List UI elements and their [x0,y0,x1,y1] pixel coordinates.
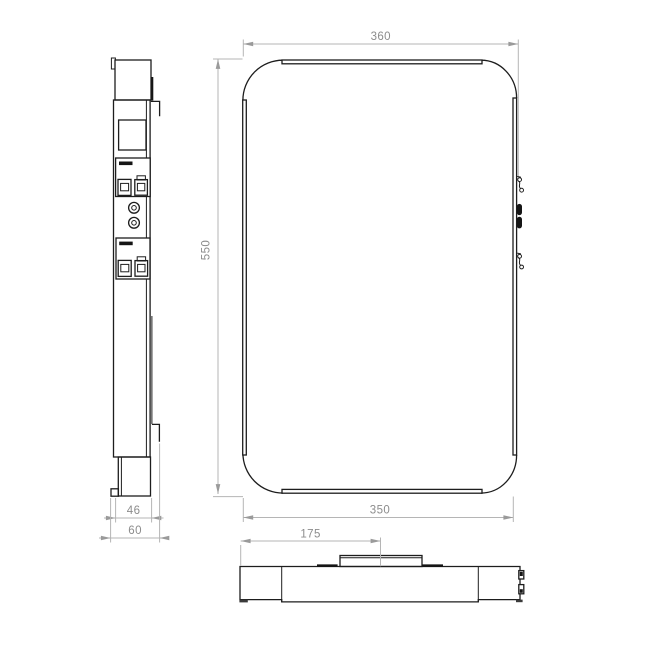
dim-label-175: 175 [300,528,320,540]
round-button-lower-center [132,221,137,226]
corner-arc-bottom-right [481,455,517,493]
bottom-foot [111,489,118,496]
arrowhead [160,536,170,541]
lower-hook-ring-bottom [520,265,524,269]
arrowhead [508,42,518,47]
side-knob-lower [517,217,522,229]
top-cap [115,60,151,100]
round-button-upper-center [132,206,137,211]
arrowhead [371,539,381,544]
top-edge-slot [282,60,482,64]
top-hook-arm [151,101,160,116]
dim-label-360: 360 [371,31,391,43]
dim-label-60: 60 [128,525,142,537]
dim-label-550: 550 [201,240,213,260]
lower-hook-nub [517,253,521,254]
right-connector-upper-pin [520,572,523,576]
bottom-cap [118,457,150,496]
left-foot [239,600,247,603]
round-button-lower [129,217,140,228]
lower-hook-wire [518,258,520,266]
dim-depth-overall: 60 [99,444,169,543]
arrowhead [216,59,221,69]
arrowhead [243,42,253,47]
right-connector-lower-pin [520,589,523,593]
right-edge-hardware [517,176,524,269]
dim-front-width-bottom: 350 [243,497,513,523]
terminal-block-lower [116,238,150,279]
corner-arc-bottom-left [243,453,283,493]
control-buttons [129,202,140,228]
left-edge-slot [243,100,247,455]
arrowhead [243,515,253,520]
arrowhead [101,536,111,541]
terminal-label-bar [119,162,133,166]
corner-arc-top-left [243,60,283,100]
bottom-hook-arm [152,424,160,441]
upper-hook-ring-bottom [520,188,524,192]
dim-label-46: 46 [127,505,141,517]
panel-dimension-drawing: 360 550 350 175 [0,0,650,650]
dim-depth-inner: 46 [104,498,164,523]
right-edge-slot [513,98,517,455]
right-foot [516,600,523,603]
side-view [111,58,160,496]
bottom-edge-slot [282,489,482,493]
drawing-canvas: 360 550 350 175 [0,0,650,650]
upper-hook-nub [517,176,521,177]
arrowhead [216,484,221,494]
bottom-view [239,556,523,603]
dim-front-height: 550 [201,59,244,497]
dimensions: 360 550 350 175 [99,31,518,566]
display-window [119,120,146,150]
side-knob-upper [517,204,522,215]
terminal-label-bar [119,242,133,246]
arrowhead [241,539,251,544]
dim-front-width-top: 360 [243,31,518,176]
corner-arc-top-right [481,60,517,98]
dim-label-350: 350 [370,504,390,516]
round-button-upper [129,202,140,213]
upper-hook-wire [518,181,520,189]
front-view [243,60,524,493]
arrowhead [503,515,513,520]
terminal-block-upper [116,158,151,197]
